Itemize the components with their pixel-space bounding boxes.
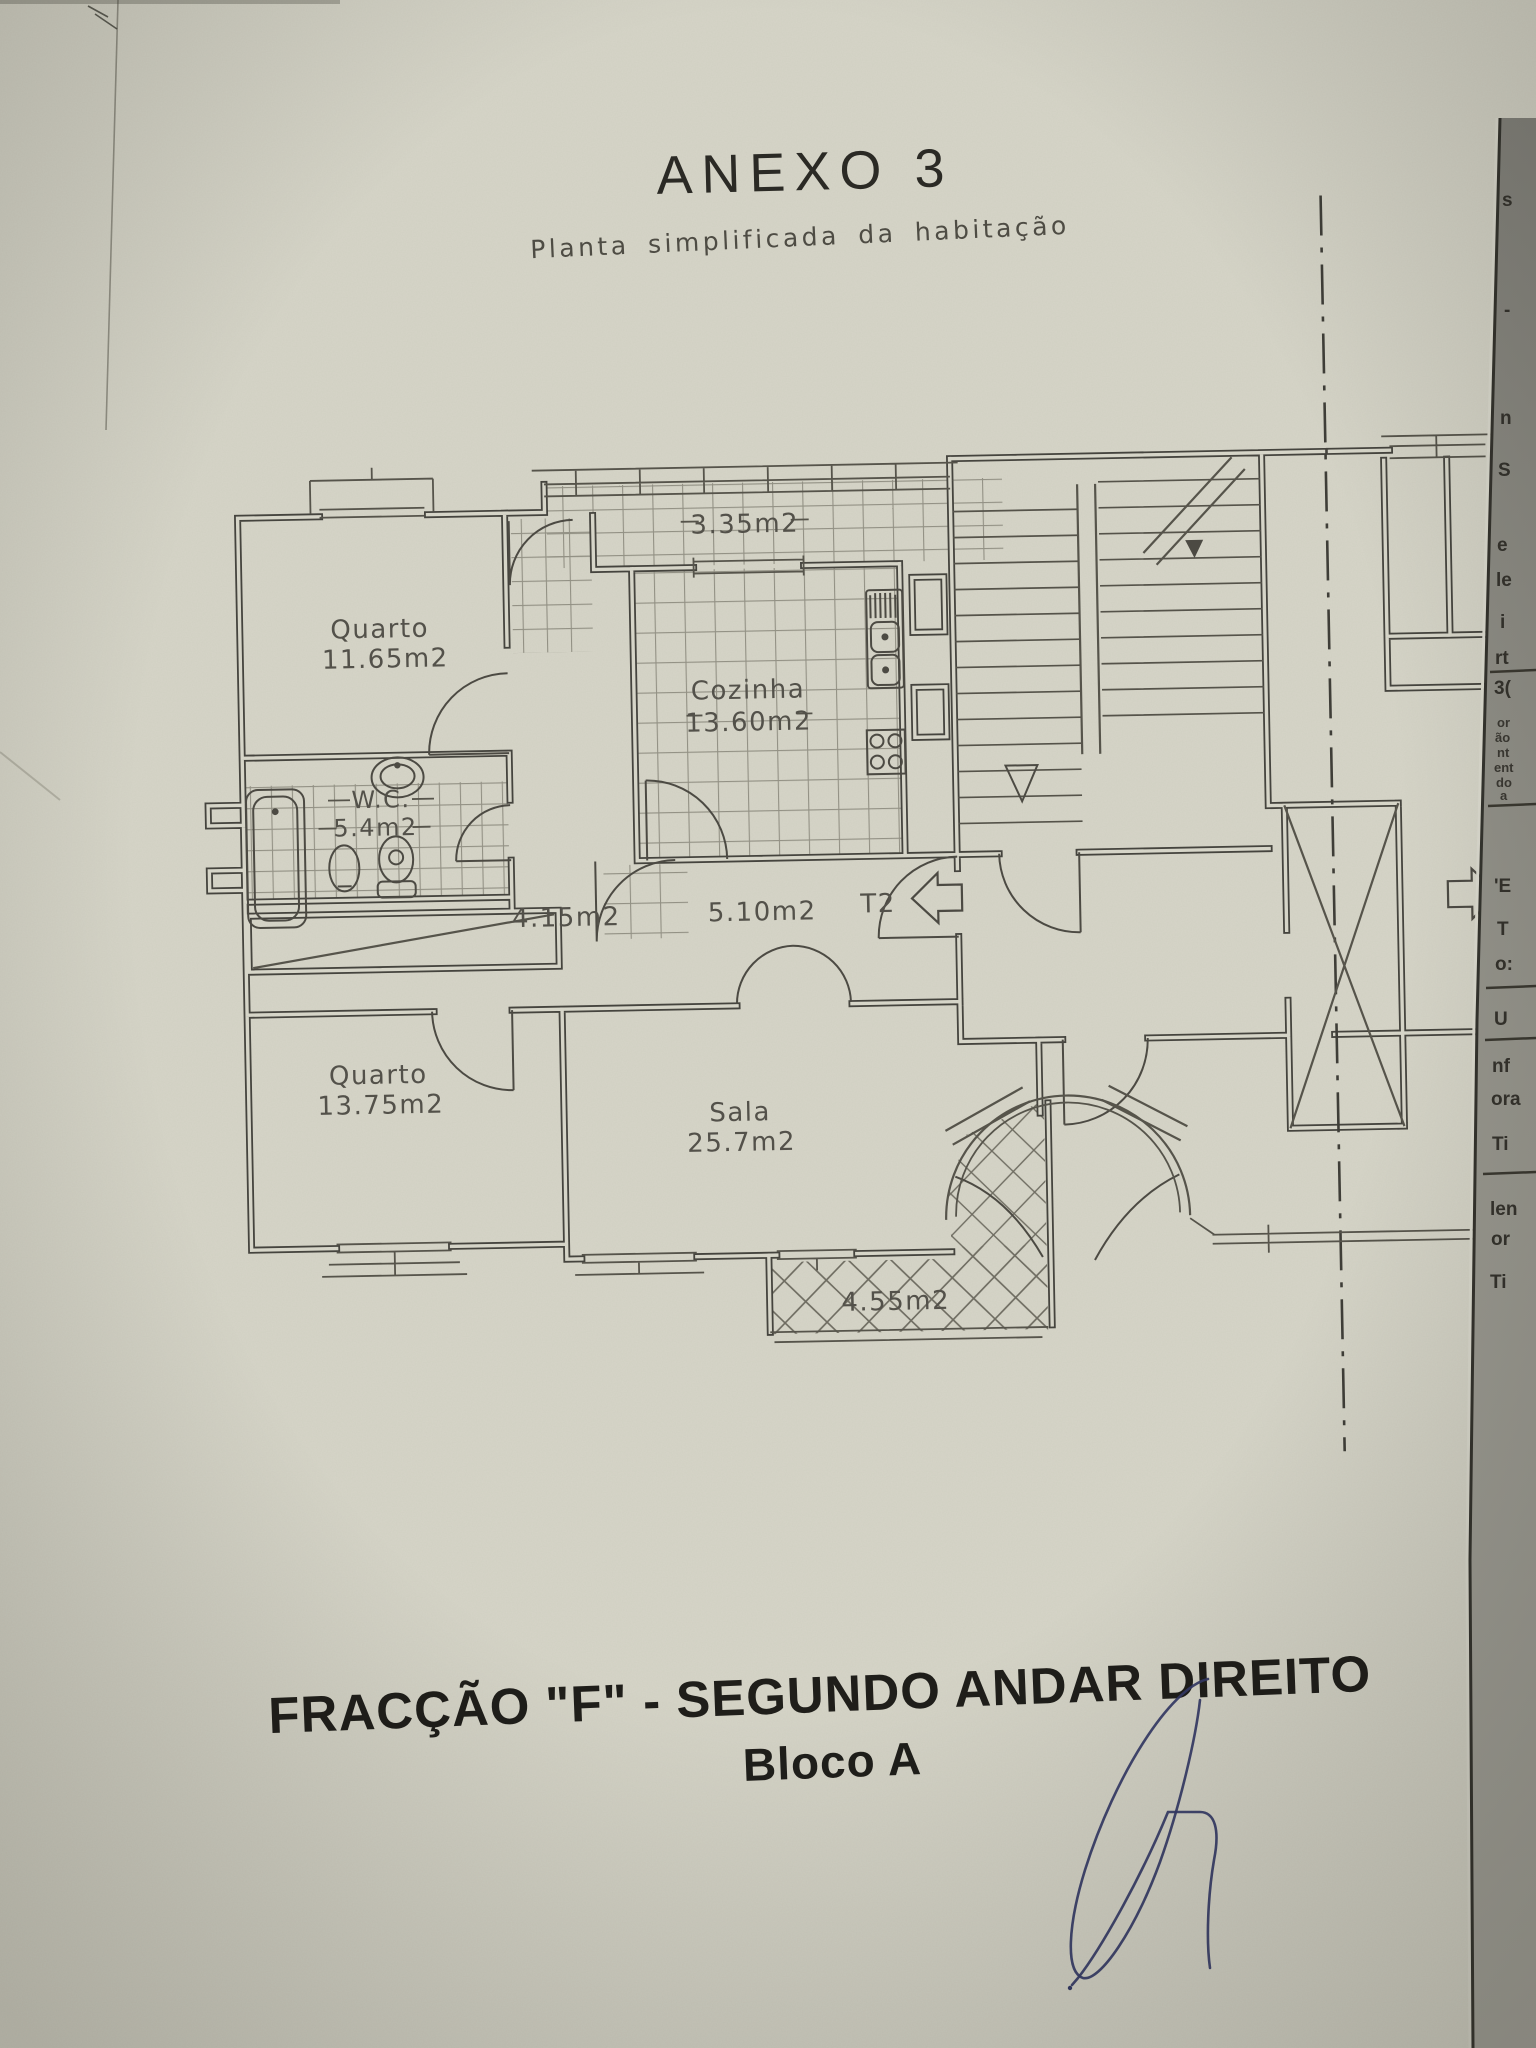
photo-vignette [0, 0, 1536, 2048]
page-canvas: ANEXO 3 Planta simplificada da habitação [0, 0, 1536, 2048]
scanned-floor-plan-page: ANEXO 3 Planta simplificada da habitação [0, 0, 1536, 2048]
